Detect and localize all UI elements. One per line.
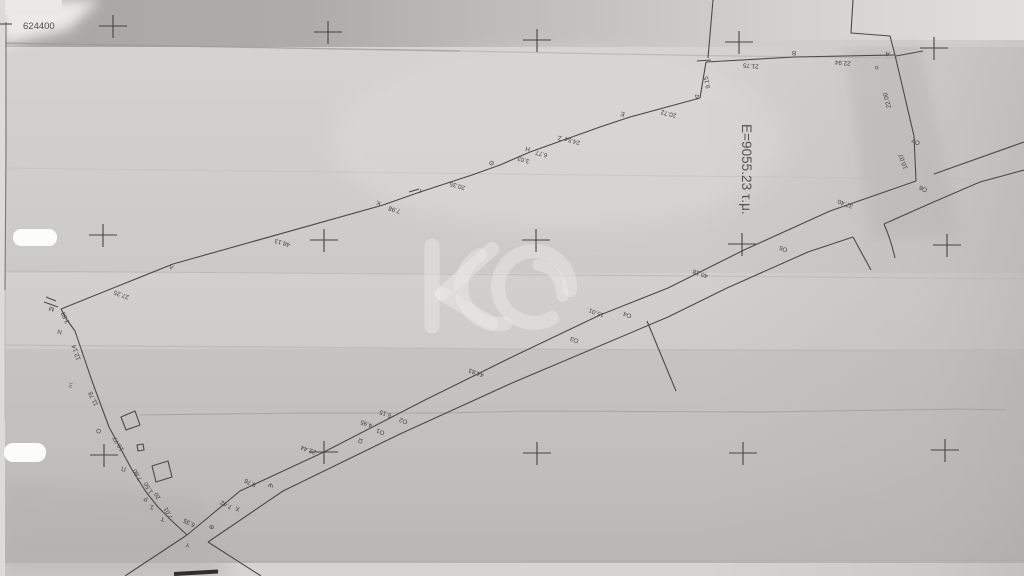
svg-text:624400: 624400 bbox=[23, 21, 55, 32]
svg-text:22.94: 22.94 bbox=[834, 58, 851, 66]
svg-text:21.75: 21.75 bbox=[742, 61, 759, 69]
svg-text:Β: Β bbox=[792, 49, 796, 56]
svg-text:E=9055.23 τ.μ.: E=9055.23 τ.μ. bbox=[739, 124, 754, 215]
